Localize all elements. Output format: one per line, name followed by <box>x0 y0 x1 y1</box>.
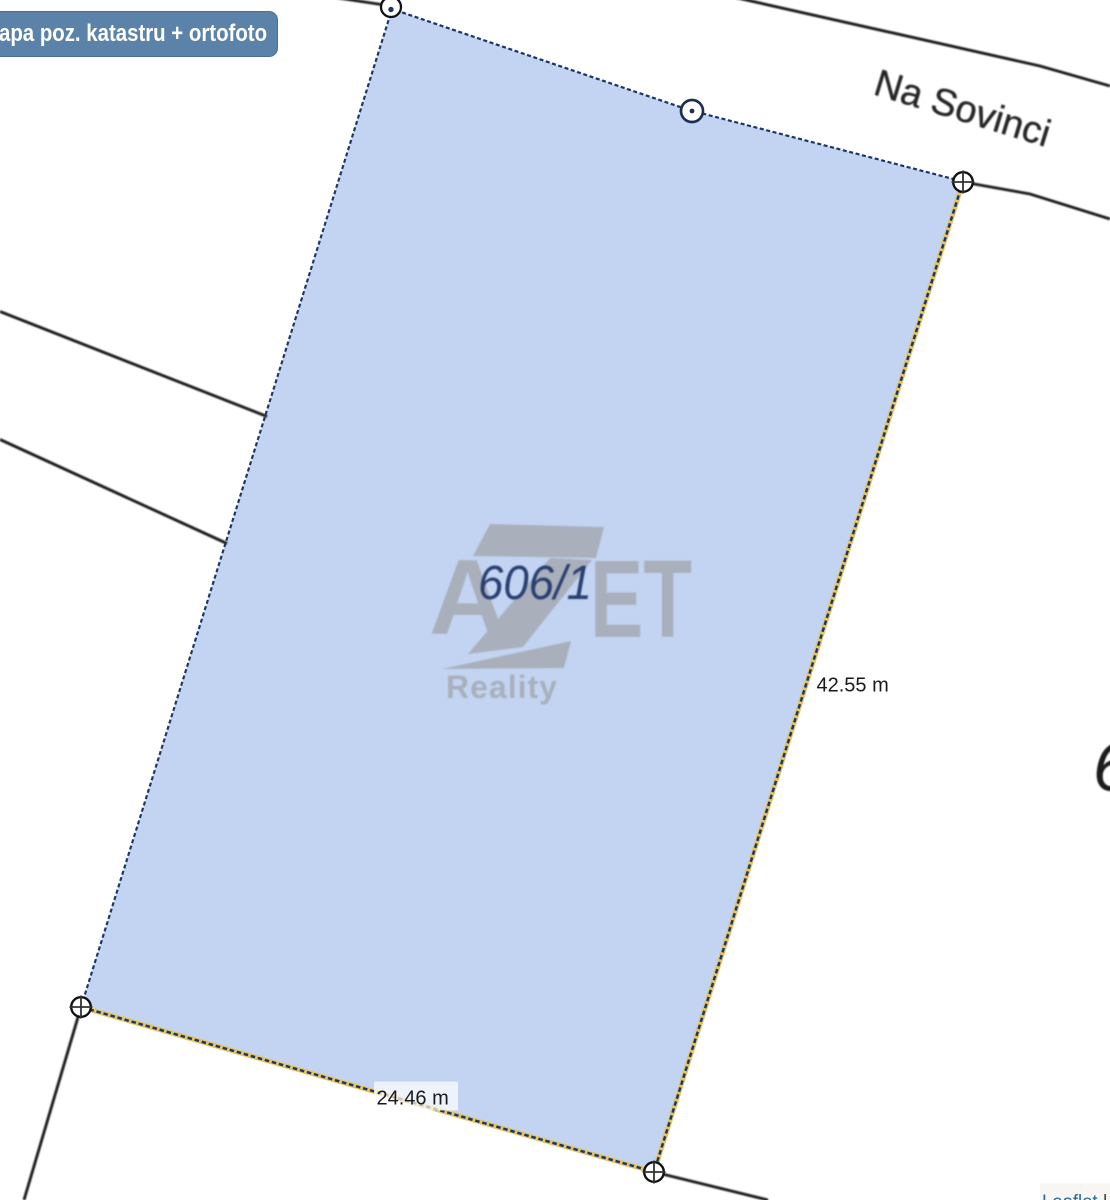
svg-text:24.46 m: 24.46 m <box>377 1088 449 1110</box>
svg-text:ET: ET <box>590 538 692 661</box>
svg-text:42.55 m: 42.55 m <box>817 675 889 697</box>
svg-text:Leaflet |: Leaflet | <box>1042 1191 1108 1200</box>
svg-text:Reality: Reality <box>446 669 558 705</box>
svg-text:Na Sovinci: Na Sovinci <box>869 62 1055 155</box>
svg-text:606/1: 606/1 <box>478 557 592 610</box>
svg-text:6: 6 <box>1093 730 1110 806</box>
